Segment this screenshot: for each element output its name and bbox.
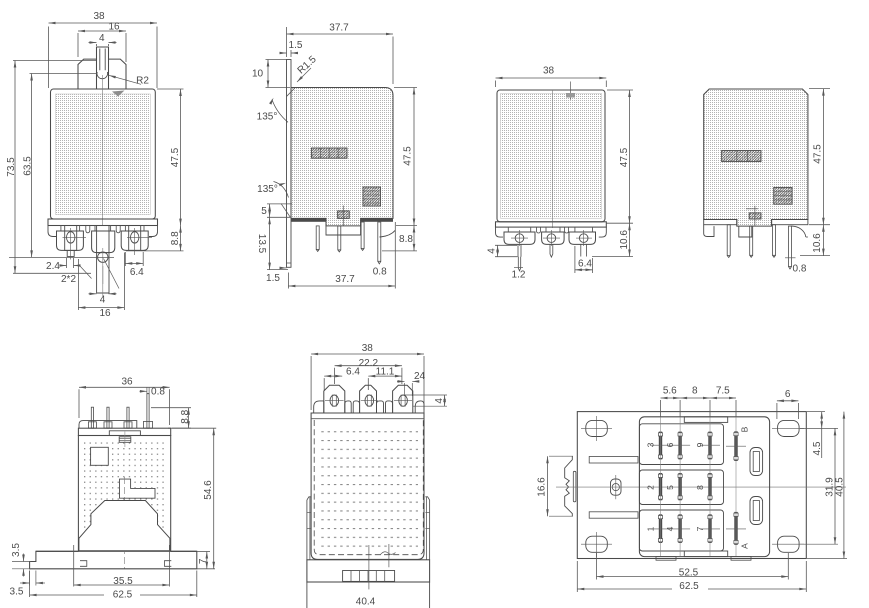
svg-text:4: 4 [100, 295, 106, 306]
svg-text:4: 4 [487, 248, 498, 254]
svg-text:6: 6 [665, 442, 675, 447]
svg-text:16: 16 [99, 308, 111, 319]
svg-text:135°: 135° [257, 184, 278, 195]
svg-text:54.6: 54.6 [203, 480, 214, 500]
svg-text:7: 7 [695, 526, 705, 531]
svg-text:16: 16 [108, 22, 120, 33]
svg-text:2*2: 2*2 [61, 274, 76, 285]
svg-text:73.5: 73.5 [6, 157, 17, 177]
svg-text:36: 36 [121, 377, 133, 388]
svg-text:8.8: 8.8 [180, 409, 191, 423]
svg-text:16.6: 16.6 [537, 477, 548, 497]
svg-text:38: 38 [362, 343, 374, 354]
svg-text:35.5: 35.5 [113, 576, 133, 587]
svg-text:10: 10 [252, 69, 264, 80]
svg-text:62.5: 62.5 [113, 590, 133, 601]
svg-text:0.8: 0.8 [151, 387, 165, 398]
svg-text:47.5: 47.5 [813, 144, 824, 164]
svg-text:4: 4 [434, 398, 445, 404]
svg-text:8.8: 8.8 [170, 231, 181, 245]
svg-text:135°: 135° [257, 112, 278, 123]
svg-text:3.5: 3.5 [10, 587, 24, 598]
svg-text:63.5: 63.5 [23, 156, 34, 176]
svg-text:1: 1 [646, 526, 656, 531]
svg-text:37.7: 37.7 [335, 274, 355, 285]
svg-text:B: B [740, 426, 750, 432]
svg-text:5: 5 [665, 485, 675, 490]
svg-text:47.5: 47.5 [403, 146, 414, 166]
svg-text:6.4: 6.4 [578, 259, 592, 270]
svg-text:1.5: 1.5 [266, 273, 280, 284]
svg-text:6.4: 6.4 [130, 267, 144, 278]
svg-text:9: 9 [695, 442, 705, 447]
svg-text:10.6: 10.6 [619, 230, 630, 250]
svg-text:6: 6 [785, 389, 791, 400]
svg-text:24: 24 [414, 371, 426, 382]
svg-text:40.5: 40.5 [834, 477, 845, 497]
svg-text:8.8: 8.8 [399, 234, 413, 245]
svg-text:4: 4 [665, 526, 675, 531]
svg-text:40.4: 40.4 [356, 597, 376, 608]
svg-text:8: 8 [692, 386, 698, 397]
svg-text:3: 3 [646, 442, 656, 447]
svg-text:38: 38 [543, 66, 555, 77]
svg-text:47.5: 47.5 [170, 147, 181, 167]
svg-text:37.7: 37.7 [329, 23, 349, 34]
svg-text:4.5: 4.5 [812, 441, 823, 455]
svg-text:2: 2 [646, 485, 656, 490]
svg-text:38: 38 [93, 11, 105, 22]
svg-text:0.8: 0.8 [793, 264, 807, 275]
svg-text:0.8: 0.8 [373, 267, 387, 278]
svg-text:7.5: 7.5 [716, 386, 730, 397]
svg-text:47.5: 47.5 [619, 147, 630, 167]
svg-text:11.1: 11.1 [376, 366, 395, 377]
svg-text:4: 4 [99, 33, 105, 44]
svg-text:R2: R2 [136, 76, 149, 87]
svg-text:7: 7 [198, 558, 209, 564]
svg-text:5: 5 [261, 206, 267, 217]
svg-text:R1.5: R1.5 [296, 54, 319, 77]
svg-text:5.6: 5.6 [663, 386, 677, 397]
svg-text:A: A [740, 543, 750, 549]
svg-text:6.4: 6.4 [346, 366, 360, 377]
svg-text:8: 8 [695, 485, 705, 490]
svg-text:1.5: 1.5 [289, 40, 303, 51]
svg-text:1.2: 1.2 [512, 269, 526, 280]
svg-text:3.5: 3.5 [11, 543, 22, 557]
svg-text:62.5: 62.5 [679, 581, 699, 592]
svg-text:10.6: 10.6 [812, 233, 823, 253]
svg-text:2.4: 2.4 [46, 261, 60, 272]
svg-text:52.5: 52.5 [679, 567, 699, 578]
svg-text:13.5: 13.5 [256, 234, 267, 254]
